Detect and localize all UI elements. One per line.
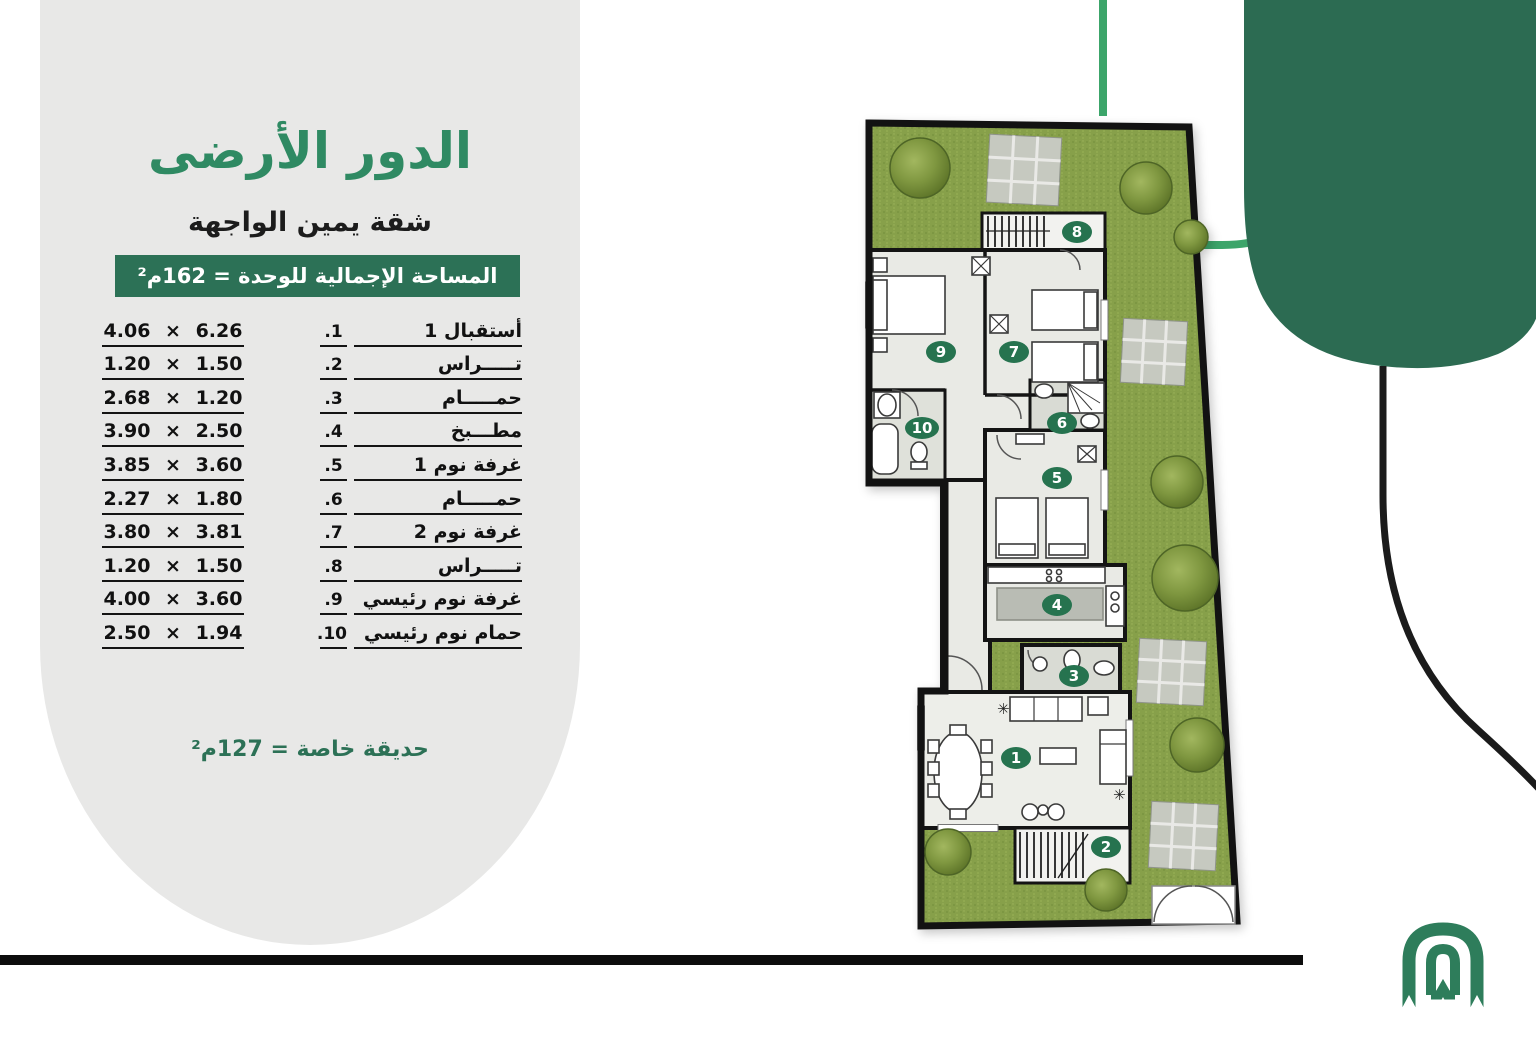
room-dimensions: 3.90 × 2.50 bbox=[102, 420, 244, 447]
room-name: حمـــــام bbox=[354, 387, 522, 414]
room-row: 4.06 × 6.26 أستقبال 11. bbox=[102, 313, 522, 347]
room-name: غرفة نوم 2 bbox=[354, 521, 522, 548]
room-dimensions: 3.80 × 3.81 bbox=[102, 521, 244, 548]
badge-2: 2 bbox=[1101, 838, 1111, 856]
room-dimensions: 1.20 × 1.50 bbox=[102, 353, 244, 380]
room-dimensions: 2.50 × 1.94 bbox=[102, 622, 244, 649]
room-name: أستقبال 1 bbox=[354, 320, 522, 347]
badge-9: 9 bbox=[936, 343, 946, 361]
room-row: 3.80 × 3.81 غرفة نوم 27. bbox=[102, 515, 522, 549]
black-curve-line bbox=[1383, 366, 1536, 792]
room-number: 9. bbox=[320, 590, 347, 615]
room-number: 10. bbox=[320, 624, 347, 649]
room-number: 7. bbox=[320, 523, 347, 548]
room-number: 3. bbox=[320, 389, 347, 414]
info-panel: الدور الأرضى شقة يمين الواجهة المساحة ال… bbox=[40, 0, 580, 945]
badge-4: 4 bbox=[1052, 596, 1062, 614]
room-row: 4.00 × 3.60 غرفة نوم رئيسي9. bbox=[102, 582, 522, 616]
room-dimension-list: 4.06 × 6.26 أستقبال 11. 1.20 × 1.50 تـــ… bbox=[102, 313, 522, 649]
room-dimensions: 2.68 × 1.20 bbox=[102, 387, 244, 414]
page-subtitle: شقة يمين الواجهة bbox=[40, 207, 580, 238]
svg-text:✳: ✳ bbox=[997, 700, 1010, 718]
brand-logo bbox=[1395, 915, 1495, 1015]
floor-plan: ✳✳ 1 2 3 4 5 6 7 8 9 10 bbox=[860, 108, 1252, 940]
room-number: 2. bbox=[320, 355, 347, 380]
badge-6: 6 bbox=[1057, 414, 1067, 432]
room-name: حمام نوم رئيسي bbox=[354, 622, 522, 649]
badge-1: 1 bbox=[1011, 749, 1021, 767]
room-row: 2.50 × 1.94 حمام نوم رئيسي10. bbox=[102, 615, 522, 649]
garden-gate bbox=[1152, 886, 1235, 924]
badge-8: 8 bbox=[1072, 223, 1082, 241]
room-row: 3.90 × 2.50 مطـــبخ4. bbox=[102, 414, 522, 448]
room-number: 4. bbox=[320, 422, 347, 447]
room-row: 2.68 × 1.20 حمـــــام3. bbox=[102, 380, 522, 414]
total-area-banner: المساحة الإجمالية للوحدة = 162م² bbox=[115, 255, 520, 297]
room-name: مطـــبخ bbox=[354, 420, 522, 447]
room-dimensions: 4.00 × 3.60 bbox=[102, 588, 244, 615]
room-row: 1.20 × 1.50 تـــــراس8. bbox=[102, 548, 522, 582]
badge-7: 7 bbox=[1009, 343, 1019, 361]
badge-3: 3 bbox=[1069, 667, 1079, 685]
room-dimensions: 1.20 × 1.50 bbox=[102, 555, 244, 582]
room-row: 1.20 × 1.50 تـــــراس2. bbox=[102, 347, 522, 381]
room-number: 8. bbox=[320, 557, 347, 582]
room-dimensions: 4.06 × 6.26 bbox=[102, 320, 244, 347]
room-name: غرفة نوم 1 bbox=[354, 454, 522, 481]
room-number: 6. bbox=[320, 490, 347, 515]
room-number: 5. bbox=[320, 456, 347, 481]
room-name: حمـــــام bbox=[354, 488, 522, 515]
footer-divider-bar bbox=[0, 955, 1303, 965]
garden-area-note: حديقة خاصة = 127م² bbox=[40, 737, 580, 762]
badge-10: 10 bbox=[912, 419, 933, 437]
room-row: 3.85 × 3.60 غرفة نوم 15. bbox=[102, 447, 522, 481]
room-name: غرفة نوم رئيسي bbox=[354, 588, 522, 615]
room-row: 2.27 × 1.80 حمـــــام6. bbox=[102, 481, 522, 515]
page-title: الدور الأرضى bbox=[40, 122, 580, 180]
badge-5: 5 bbox=[1052, 469, 1062, 487]
room-name: تـــــراس bbox=[354, 555, 522, 582]
room-number: 1. bbox=[320, 322, 347, 347]
svg-text:✳: ✳ bbox=[1113, 786, 1126, 804]
dark-green-blob bbox=[1244, 0, 1536, 368]
room-dimensions: 3.85 × 3.60 bbox=[102, 454, 244, 481]
room-dimensions: 2.27 × 1.80 bbox=[102, 488, 244, 515]
room-name: تـــــراس bbox=[354, 353, 522, 380]
